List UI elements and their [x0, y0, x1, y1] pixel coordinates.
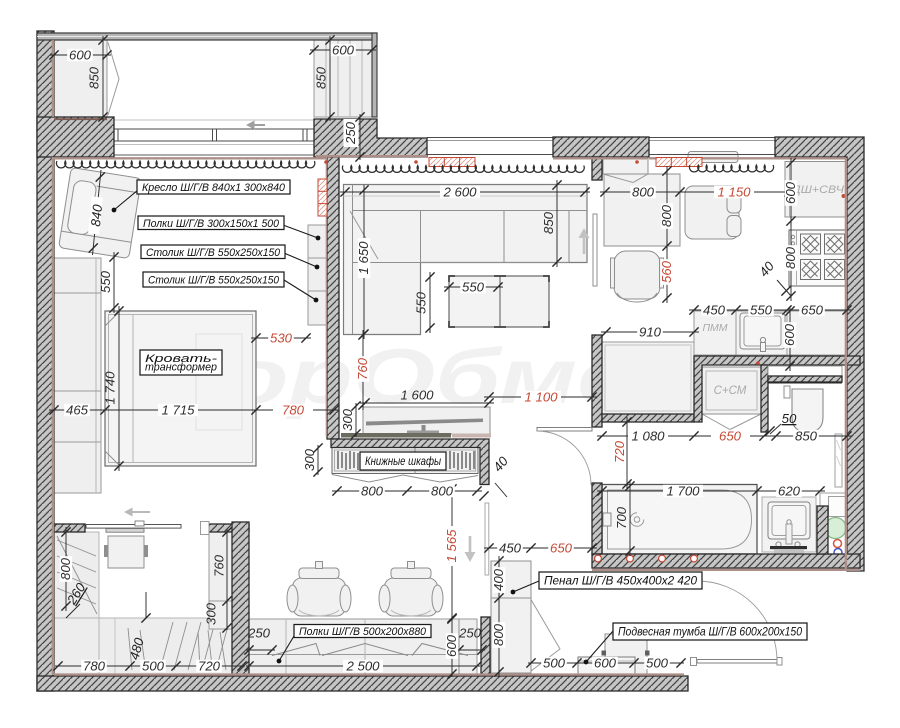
svg-text:840: 840 — [88, 203, 105, 227]
svg-text:50: 50 — [782, 411, 797, 426]
svg-text:650: 650 — [801, 303, 824, 318]
svg-text:600: 600 — [444, 634, 459, 657]
svg-text:800: 800 — [783, 246, 798, 269]
svg-text:250: 250 — [343, 121, 358, 145]
svg-text:465: 465 — [66, 403, 89, 418]
svg-text:850: 850 — [87, 66, 102, 89]
svg-text:600: 600 — [783, 181, 798, 204]
svg-text:1 600: 1 600 — [400, 388, 434, 403]
svg-text:550: 550 — [750, 303, 773, 318]
svg-text:1 080: 1 080 — [631, 429, 665, 444]
svg-text:530: 530 — [270, 331, 293, 346]
svg-text:1 150: 1 150 — [717, 185, 751, 200]
svg-text:Пенал Ш/Г/В 450х400х2 420: Пенал Ш/Г/В 450х400х2 420 — [544, 575, 698, 588]
svg-text:300: 300 — [204, 602, 219, 625]
svg-text:560: 560 — [659, 260, 674, 283]
svg-text:450: 450 — [499, 541, 522, 556]
svg-text:910: 910 — [639, 325, 662, 340]
svg-text:1 650: 1 650 — [356, 241, 371, 275]
svg-text:650: 650 — [719, 429, 742, 444]
svg-text:800: 800 — [361, 484, 384, 499]
svg-text:Полки Ш/Г/В 300х150х1 500: Полки Ш/Г/В 300х150х1 500 — [143, 218, 280, 230]
svg-text:600: 600 — [594, 656, 617, 671]
svg-text:550: 550 — [98, 270, 113, 293]
svg-text:Столик Ш/Г/В 550х250х150: Столик Ш/Г/В 550х250х150 — [146, 247, 281, 259]
svg-text:600: 600 — [332, 43, 355, 58]
svg-text:760: 760 — [212, 554, 227, 577]
svg-text:300: 300 — [340, 408, 355, 431]
svg-text:Подвесная тумба Ш/Г/В 600х200х: Подвесная тумба Ш/Г/В 600х200х150 — [618, 626, 802, 639]
svg-text:800: 800 — [58, 557, 73, 580]
svg-text:720: 720 — [612, 440, 627, 463]
svg-text:700: 700 — [614, 506, 629, 529]
svg-text:800: 800 — [632, 185, 655, 200]
svg-text:1 715: 1 715 — [161, 403, 195, 418]
svg-text:500: 500 — [142, 659, 165, 674]
svg-text:500: 500 — [646, 656, 669, 671]
svg-text:850: 850 — [795, 429, 818, 444]
svg-text:850: 850 — [314, 66, 329, 89]
svg-text:2 600: 2 600 — [442, 185, 477, 200]
svg-text:720: 720 — [198, 659, 221, 674]
svg-text:550: 550 — [462, 280, 485, 295]
svg-text:400: 400 — [491, 568, 506, 591]
svg-text:2 500: 2 500 — [345, 659, 380, 674]
svg-text:1 740: 1 740 — [103, 371, 118, 405]
svg-text:450: 450 — [703, 303, 726, 318]
svg-text:300: 300 — [302, 448, 317, 471]
svg-text:780: 780 — [282, 403, 305, 418]
svg-text:1 700: 1 700 — [666, 484, 700, 499]
svg-text:ПММ: ПММ — [702, 322, 727, 334]
svg-text:500: 500 — [543, 656, 566, 671]
svg-text:600: 600 — [782, 323, 797, 346]
svg-text:250: 250 — [247, 626, 271, 641]
svg-text:620: 620 — [778, 484, 801, 499]
svg-text:Столик Ш/Г/В 550х250х150: Столик Ш/Г/В 550х250х150 — [148, 275, 280, 287]
svg-text:Полки Ш/Г/В 500х200х880: Полки Ш/Г/В 500х200х880 — [299, 626, 426, 638]
svg-text:600: 600 — [69, 48, 92, 63]
svg-text:760: 760 — [355, 357, 370, 380]
svg-text:С+СМ: С+СМ — [714, 385, 747, 397]
svg-text:780: 780 — [83, 659, 106, 674]
svg-text:Кресло Ш/Г/В 840х1 300х840: Кресло Ш/Г/В 840х1 300х840 — [142, 182, 286, 194]
svg-text:250: 250 — [458, 626, 482, 641]
svg-text:800: 800 — [659, 204, 674, 227]
svg-text:850: 850 — [541, 211, 556, 234]
svg-text:650: 650 — [550, 541, 573, 556]
svg-text:1 565: 1 565 — [444, 529, 459, 563]
svg-text:550: 550 — [414, 291, 429, 314]
svg-text:трансформер: трансформер — [145, 362, 217, 374]
svg-text:Книжные шкафы: Книжные шкафы — [365, 455, 441, 468]
svg-text:800: 800 — [491, 623, 506, 646]
svg-text:800: 800 — [431, 484, 454, 499]
svg-text:1 100: 1 100 — [524, 390, 558, 405]
